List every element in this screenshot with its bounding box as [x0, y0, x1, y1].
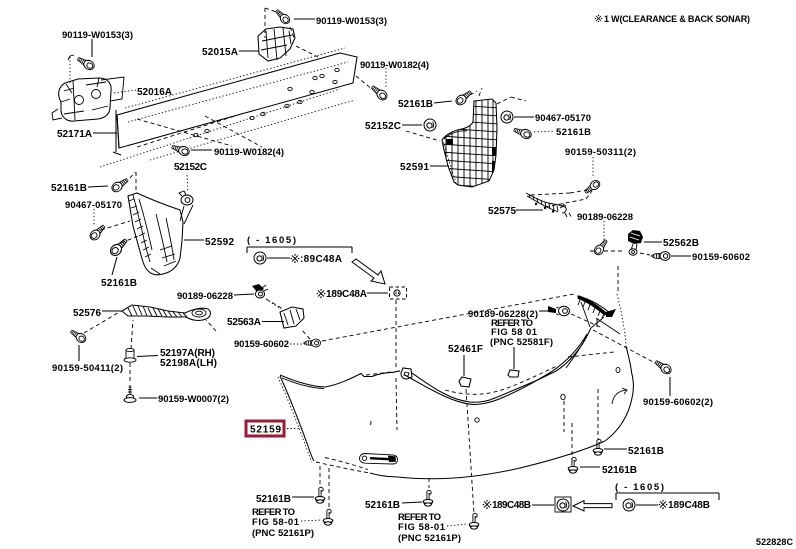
svg-text:189C48A: 189C48A — [326, 289, 367, 300]
svg-text:(PNC 52581F): (PNC 52581F) — [490, 337, 553, 348]
svg-text::89C48A: :89C48A — [300, 254, 342, 265]
svg-text:52016A: 52016A — [137, 87, 172, 98]
svg-text:52152C: 52152C — [365, 121, 401, 132]
svg-text:(PNC 52161P): (PNC 52161P) — [398, 533, 461, 544]
svg-text:52161B: 52161B — [602, 465, 637, 476]
svg-text:(PNC 52161P): (PNC 52161P) — [252, 528, 314, 539]
svg-text:90159-50311(2): 90159-50311(2) — [565, 147, 636, 158]
svg-text:52171A: 52171A — [57, 129, 92, 140]
svg-text:90467-05170: 90467-05170 — [65, 200, 122, 211]
svg-text:( - 1605): ( - 1605) — [615, 482, 664, 493]
svg-text:90189-06228: 90189-06228 — [577, 212, 633, 223]
svg-text:FIG 58-01: FIG 58-01 — [252, 517, 300, 528]
svg-text:FIG 58-01: FIG 58-01 — [398, 522, 446, 533]
svg-text:52161B: 52161B — [51, 183, 87, 194]
svg-text:90119-W0182(4): 90119-W0182(4) — [214, 147, 284, 158]
svg-text:52562B: 52562B — [663, 238, 699, 249]
svg-text:52198A(LH): 52198A(LH) — [160, 358, 217, 369]
svg-text:522828C: 522828C — [756, 537, 794, 547]
svg-text:90119-W0153(3): 90119-W0153(3) — [316, 16, 387, 27]
svg-text:90467-05170: 90467-05170 — [535, 113, 591, 124]
svg-text:52015A: 52015A — [202, 47, 238, 58]
svg-text:( - 1605): ( - 1605) — [247, 235, 296, 246]
svg-text:52161B: 52161B — [556, 127, 591, 138]
svg-text:52161B: 52161B — [256, 494, 291, 505]
svg-text:52161B: 52161B — [101, 278, 137, 289]
svg-text:90159-W0007(2): 90159-W0007(2) — [158, 394, 229, 405]
svg-text:90159-60602: 90159-60602 — [234, 339, 289, 350]
svg-text:52591: 52591 — [400, 162, 429, 173]
svg-text:90119-W0153(3): 90119-W0153(3) — [62, 30, 133, 41]
svg-text:52159: 52159 — [250, 425, 281, 436]
svg-text:52161B: 52161B — [398, 99, 433, 110]
svg-text:90189-06228: 90189-06228 — [177, 291, 233, 302]
svg-text:189C48B: 189C48B — [668, 500, 710, 511]
svg-text:52461F: 52461F — [448, 344, 483, 355]
svg-text:90119-W0182(4): 90119-W0182(4) — [360, 60, 429, 71]
svg-text:52161B: 52161B — [365, 500, 400, 511]
svg-text:52592: 52592 — [205, 237, 234, 248]
svg-text:52576: 52576 — [73, 308, 101, 319]
svg-text:52563A: 52563A — [227, 317, 261, 328]
svg-text:90159-50411(2): 90159-50411(2) — [52, 363, 123, 374]
svg-text:189C48B: 189C48B — [492, 500, 531, 511]
svg-text:52161B: 52161B — [628, 446, 664, 457]
svg-text:90159-60602(2): 90159-60602(2) — [643, 397, 713, 408]
svg-text:1 W(CLEARANCE & BACK SONAR): 1 W(CLEARANCE & BACK SONAR) — [604, 14, 750, 24]
svg-text:52575: 52575 — [488, 206, 516, 217]
svg-text:52152C: 52152C — [174, 162, 207, 173]
svg-text:90159-60602: 90159-60602 — [692, 252, 750, 263]
